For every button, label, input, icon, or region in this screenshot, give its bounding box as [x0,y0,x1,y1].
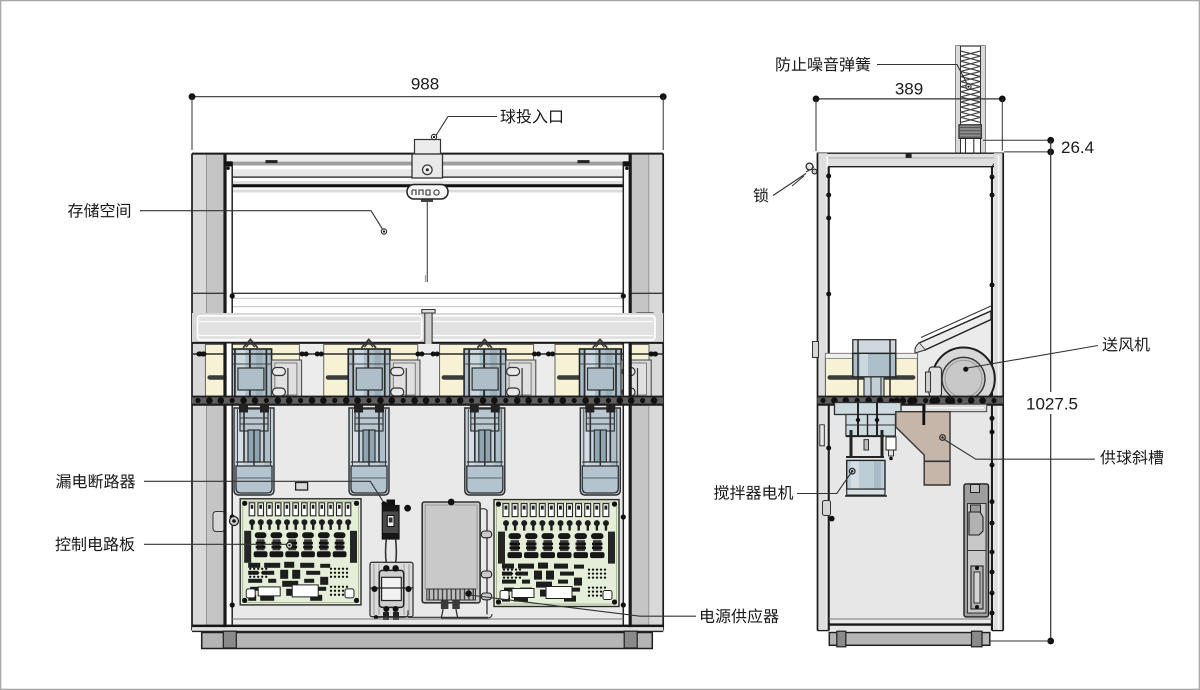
svg-text:389: 389 [895,80,923,99]
svg-text:1027.5: 1027.5 [1026,395,1078,414]
svg-text:26.4: 26.4 [1061,138,1094,157]
svg-text:988: 988 [411,75,439,94]
